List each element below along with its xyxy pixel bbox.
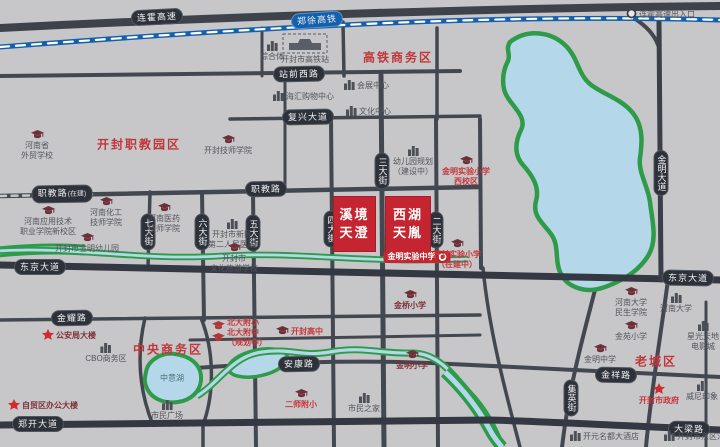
weini-impression-label: 威尼印象	[686, 391, 718, 401]
graduation-cap-icon	[460, 156, 473, 166]
culture-tourism-school-line: 文化旅游学校	[210, 264, 258, 273]
star-icon	[653, 383, 665, 395]
kaifeng-experimental-primary-line: 开封实验小学	[433, 250, 481, 259]
jinming-kindergarten: 开封市金明幼儿园	[55, 233, 119, 253]
building-icon	[227, 219, 238, 229]
henan-medical-technician-college-label: 河南医药技师学院	[148, 213, 180, 233]
star-icon	[8, 399, 20, 411]
starlight-plaza-label: 星光天地电影城	[687, 331, 719, 351]
lianhuo-expressway-label: 连霍高速	[131, 8, 184, 27]
zhijiao-road-west-label: 职教路(在建)	[32, 184, 93, 203]
jinming-kindergarten-label: 开封市金明幼儿园	[55, 243, 119, 253]
graduation-cap-icon	[228, 243, 241, 253]
kindergarten-under-construction-line: 幼儿园规划	[393, 157, 433, 166]
jiying-street-label: 集英街	[564, 380, 579, 417]
graduation-caps-icon	[212, 321, 225, 343]
building-icon	[267, 41, 278, 51]
dongjing-avenue-east-label: 东京大道	[662, 270, 714, 287]
graduation-cap-icon	[158, 203, 171, 213]
building-icon	[359, 393, 370, 403]
graduation-cap-icon	[276, 326, 289, 336]
dongjing-avenue-west-label: 东京大道	[14, 259, 66, 275]
jinming-primary-school: 金明小学	[396, 350, 428, 370]
graduation-cap-icon	[460, 156, 473, 166]
weini-impression-line: 威尼印象	[686, 392, 718, 401]
building-icon	[408, 146, 419, 156]
kaifeng-city-government: 开封市政府	[639, 383, 679, 405]
kaifeng-high-school-label: 开封高中	[291, 326, 323, 336]
henan-foreign-trade-school: 河南省外贸学校	[21, 130, 53, 160]
jinming-middle-school: 金明中学	[584, 344, 616, 364]
fuxing-avenue-label: 复兴大道	[282, 109, 334, 126]
starlight-plaza: 星光天地电影城	[687, 321, 719, 351]
kaifeng-experimental-primary: 开封实验小学（在建中）	[433, 239, 481, 269]
kaifeng-technician-college: 开封技师学院	[204, 135, 252, 155]
map-canvas: 站前西路复兴大道职教路(在建)职教路东京大道东京大道金耀路安康路金祥路郑开大道大…	[0, 0, 720, 447]
cbo-business-area: CBO商务区	[85, 343, 126, 363]
beida-affiliated-schools-line: （规划中）	[227, 338, 267, 347]
henan-chemical-technician-college-line: 河南化工	[90, 208, 122, 217]
kaifeng-city-government-label: 开封市政府	[639, 395, 679, 405]
graduation-cap-icon	[222, 135, 235, 145]
citizen-home-line: 市民之家	[348, 404, 380, 413]
beida-affiliated-schools-line: 北大附小	[227, 318, 267, 327]
graduation-cap-icon	[625, 287, 638, 297]
kaifeng-high-school-line: 开封高中	[291, 327, 323, 336]
jinming-middle-school-label: 金明中学	[584, 354, 616, 364]
kaifeng-technician-college-label: 开封技师学院	[204, 145, 252, 155]
building-icon	[267, 41, 278, 51]
cbo-business-area-line: CBO商务区	[85, 354, 126, 363]
building-icon	[664, 431, 675, 441]
graduation-cap-icon	[276, 326, 289, 336]
train-station-icon	[282, 33, 328, 54]
building-icon	[101, 343, 112, 353]
henan-university-minsheng-college: 河南大学民生学院	[615, 287, 647, 317]
citizen-square-line: 市民广场	[151, 411, 183, 420]
henan-chemical-technician-college-line: 技师学院	[90, 218, 122, 227]
starlight-plaza-line: 星光天地	[687, 332, 719, 341]
lianhuo-expressway-exit-line: 连霍高速出入口	[639, 10, 695, 19]
project-block-xijing-tiancheng: 溪境天澄	[333, 196, 376, 252]
henan-university-minsheng-college-label: 河南大学民生学院	[615, 297, 647, 317]
graduation-cap-icon	[42, 206, 55, 216]
building-icon	[697, 381, 708, 391]
henan-university: 河南大学	[660, 293, 692, 313]
henan-chemical-technician-college: 河南化工技师学院	[90, 197, 122, 227]
graduation-cap-icon	[594, 344, 607, 354]
jinming-experimental-middle-school-banner-text: 金明实验中学	[388, 251, 436, 263]
graduation-cap-icon	[42, 206, 55, 216]
kaifeng-technician-college-line: 开封技师学院	[204, 146, 252, 155]
district-gaotie-cbd: 高铁商务区	[363, 49, 433, 66]
kindergarten-under-construction-line: （建设中）	[393, 167, 433, 176]
citizen-home: 市民之家	[348, 393, 380, 413]
kaifeng-experimental-primary-line: （在建中）	[433, 260, 481, 269]
graduation-cap-icon	[222, 135, 235, 145]
convention-center: 会展中心	[344, 80, 389, 90]
public-security-building: 公安局大楼	[42, 329, 96, 341]
graduation-cap-icon	[625, 321, 638, 331]
beida-affiliated-schools: 北大附小北大附中（规划中）	[212, 317, 267, 347]
kaiyuan-mingdu-hotel: 开元名都大酒店	[570, 431, 639, 441]
kaiyuan-mingdu-hotel-label: 开元名都大酒店	[583, 431, 639, 441]
graduation-cap-icon	[404, 290, 417, 300]
graduation-cap-icon	[81, 233, 94, 243]
building-icon	[408, 146, 419, 156]
zhijiao-road-west-label-suffix: (在建)	[68, 191, 87, 198]
henan-university-label: 河南大学	[660, 303, 692, 313]
citizen-square-label: 市民广场	[151, 410, 183, 420]
building-icon	[346, 106, 357, 116]
project-block-xihu-tianyin-label: 天胤	[393, 224, 423, 242]
free-trade-office-building-line: 自贸区办公大楼	[22, 401, 78, 410]
graduation-cap-icon	[100, 197, 113, 207]
graduation-cap-icon	[406, 350, 419, 360]
graduation-cap-icon	[100, 197, 113, 207]
east-district-court-label: 开封市东区法院	[677, 431, 720, 441]
jinyuan-primary-school-line: 金苑小学	[615, 332, 647, 341]
east-district-court-line: 开封市东区法院	[677, 432, 720, 441]
jinming-experimental-primary-west: 金明实验小学西校区	[442, 156, 490, 186]
culture-tourism-school-line: 开封市	[210, 254, 258, 263]
kindergarten-under-construction-label: 幼儿园规划（建设中）	[393, 156, 433, 176]
haihui-shopping-center-line: 海汇购物中心	[286, 92, 334, 101]
lianhuo-expressway-exit-label: 连霍高速出入口	[639, 9, 695, 19]
district-old-town: 老城区	[635, 353, 677, 370]
building-icon	[671, 293, 682, 303]
star-icon	[42, 329, 54, 341]
jinming-experimental-primary-west-line: 西校区	[442, 177, 490, 186]
building-icon	[671, 293, 682, 303]
graduation-cap-icon	[625, 321, 638, 331]
graduation-cap-icon	[81, 233, 94, 243]
zhijiao-road-label: 职教路	[245, 181, 287, 198]
map-labels-layer: 站前西路复兴大道职教路(在建)职教路东京大道东京大道金耀路安康路金祥路郑开大道大…	[0, 0, 720, 447]
ershi-affiliated-primary-line: 二师附小	[285, 400, 317, 409]
jinyuan-primary-school: 金苑小学	[615, 321, 647, 341]
convention-center-line: 会展中心	[357, 81, 389, 90]
district-zhijiao-park: 开封职教园区	[97, 136, 181, 153]
building-icon	[162, 400, 173, 410]
convention-center-label: 会展中心	[357, 80, 389, 90]
jinming-kindergarten-line: 开封市金明幼儿园	[55, 244, 119, 253]
graduation-cap-icon	[625, 287, 638, 297]
graduation-cap-icon	[594, 344, 607, 354]
jinming-primary-school-line: 金明小学	[396, 361, 428, 370]
jinming-experimental-primary-west-label: 金明实验小学西校区	[442, 166, 490, 186]
zhanqian-west-road-label: 站前西路	[273, 66, 325, 83]
graduation-cap-icon	[295, 389, 308, 399]
free-trade-office-building-label: 自贸区办公大楼	[22, 400, 78, 410]
lianhuo-expressway-exit: 连霍高速出入口	[626, 8, 695, 19]
henan-medical-technician-college-line: 技师学院	[148, 224, 180, 233]
project-block-xijing-tiancheng-label: 天澄	[339, 224, 369, 242]
henan-applied-tech-college-line: 河南应用技术	[20, 217, 76, 226]
citizen-square: 市民广场	[151, 400, 183, 420]
henan-foreign-trade-school-line: 外贸学校	[21, 151, 53, 160]
building-icon	[698, 321, 709, 331]
building-icon	[697, 381, 708, 391]
kaifeng-high-school: 开封高中	[276, 326, 323, 336]
graduation-cap-icon	[406, 350, 419, 360]
building-icon	[344, 80, 355, 90]
train-station-icon	[282, 33, 328, 54]
jinqiao-primary-school-line: 金桥小学	[394, 301, 426, 310]
zhongyi-lake-label: 中意湖	[160, 373, 184, 384]
jinqiao-primary-school-label: 金桥小学	[394, 300, 426, 310]
kaiyuan-mingdu-hotel-line: 开元名都大酒店	[583, 432, 639, 441]
jinyao-road-label: 金耀路	[51, 310, 93, 327]
building-icon	[346, 106, 357, 116]
second-peoples-hospital-line: 开封市新区	[208, 230, 256, 239]
graduation-caps-icon	[212, 321, 225, 343]
weini-impression: 威尼印象	[686, 381, 718, 401]
henan-medical-technician-college: 河南医药技师学院	[148, 203, 180, 233]
cbo-business-area-label: CBO商务区	[85, 353, 126, 363]
san-street-label: 三大街	[375, 153, 390, 190]
graduation-cap-icon	[451, 239, 464, 249]
star-icon	[8, 399, 20, 411]
henan-chemical-technician-college-label: 河南化工技师学院	[90, 207, 122, 227]
graduation-cap-icon	[31, 130, 44, 140]
starlight-plaza-line: 电影城	[687, 342, 719, 351]
haihui-shopping-center: 海汇购物中心	[273, 91, 334, 101]
henan-university-minsheng-college-line: 河南大学	[615, 298, 647, 307]
free-trade-office-building: 自贸区办公大楼	[8, 399, 78, 411]
henan-foreign-trade-school-label: 河南省外贸学校	[21, 140, 53, 160]
haihui-shopping-center-label: 海汇购物中心	[286, 91, 334, 101]
kindergarten-under-construction: 幼儿园规划（建设中）	[393, 146, 433, 176]
henan-university-line: 河南大学	[660, 304, 692, 313]
culture-tourism-school: 开封市文化旅游学校	[210, 243, 258, 273]
graduation-cap-icon	[158, 203, 171, 213]
zhengxu-railway-label: 郑徐高铁	[290, 10, 343, 30]
culture-center-label: 文化中心	[359, 106, 391, 116]
henan-foreign-trade-school-line: 河南省	[21, 141, 53, 150]
culture-tourism-school-label: 开封市文化旅游学校	[210, 253, 258, 273]
building-icon	[664, 431, 675, 441]
east-district-court: 开封市东区法院	[664, 431, 720, 441]
kaifeng-city-government-line: 开封市政府	[639, 396, 679, 405]
building-icon	[570, 431, 581, 441]
star-icon	[653, 383, 665, 395]
kaifeng-high-speed-rail-station-line: 开封市高铁站	[281, 55, 329, 64]
jinqiao-primary-school: 金桥小学	[394, 290, 426, 310]
kaifeng-high-speed-rail-station-label: 开封市高铁站	[281, 54, 329, 64]
interchange-icon	[626, 8, 637, 19]
graduation-cap-icon	[31, 130, 44, 140]
public-security-building-line: 公安局大楼	[56, 331, 96, 340]
jinming-primary-school-label: 金明小学	[396, 360, 428, 370]
public-security-building-label: 公安局大楼	[56, 330, 96, 340]
beida-affiliated-schools-label: 北大附小北大附中（规划中）	[227, 317, 267, 347]
graduation-cap-icon	[451, 239, 464, 249]
project-block-xihu-tianyin: 西湖天胤	[385, 196, 431, 252]
culture-center: 文化中心	[346, 106, 391, 116]
henan-applied-tech-college: 河南应用技术职业学院新校区	[20, 206, 76, 236]
building-icon	[344, 80, 355, 90]
project-block-xijing-tiancheng-label: 溪境	[339, 206, 369, 224]
interchange-icon	[626, 8, 637, 19]
building-icon	[162, 400, 173, 410]
star-icon	[42, 329, 54, 341]
ankang-road-label: 安康路	[278, 356, 320, 373]
building-icon	[359, 393, 370, 403]
kaifeng-high-speed-rail-station: 开封市高铁站	[281, 33, 329, 64]
jinming-avenue-label: 金明大道	[654, 150, 669, 196]
jinming-middle-school-line: 金明中学	[584, 355, 616, 364]
building-icon	[273, 91, 284, 101]
building-icon	[570, 431, 581, 441]
ershi-affiliated-primary: 二师附小	[285, 389, 317, 409]
jinxiang-road-label: 金祥路	[595, 367, 637, 384]
jinming-experimental-primary-west-line: 金明实验小学	[442, 167, 490, 176]
culture-center-line: 文化中心	[359, 107, 391, 116]
graduation-cap-icon	[404, 290, 417, 300]
project-block-xihu-tianyin-label: 西湖	[393, 206, 423, 224]
district-central-cbd: 中央商务区	[133, 341, 203, 358]
kaifeng-experimental-primary-label: 开封实验小学（在建中）	[433, 249, 481, 269]
building-icon	[227, 219, 238, 229]
citizen-home-label: 市民之家	[348, 403, 380, 413]
henan-medical-technician-college-line: 河南医药	[148, 214, 180, 223]
building-icon	[273, 91, 284, 101]
graduation-cap-icon	[295, 389, 308, 399]
zhengkai-avenue-label: 郑开大道	[12, 416, 64, 432]
building-icon	[101, 343, 112, 353]
ershi-affiliated-primary-label: 二师附小	[285, 399, 317, 409]
graduation-cap-icon	[228, 243, 241, 253]
henan-university-minsheng-college-line: 民生学院	[615, 308, 647, 317]
building-icon	[698, 321, 709, 331]
jinyuan-primary-school-label: 金苑小学	[615, 331, 647, 341]
beida-affiliated-schools-line: 北大附中	[227, 328, 267, 337]
